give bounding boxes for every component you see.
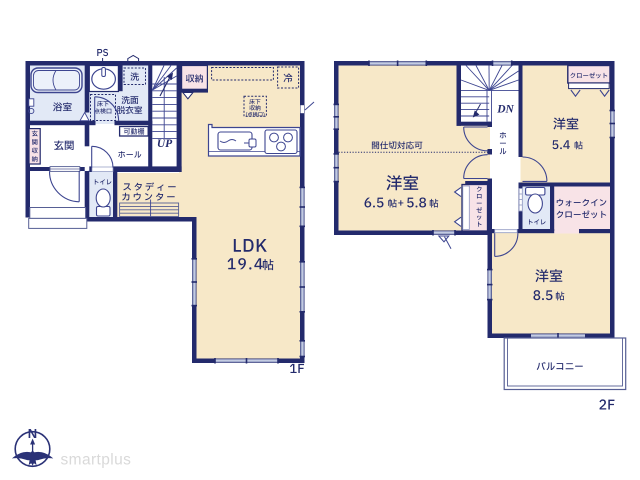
svg-text:UP: UP	[157, 138, 173, 150]
svg-text:DN: DN	[496, 104, 514, 116]
svg-text:smartplus: smartplus	[61, 452, 132, 469]
svg-text:N: N	[28, 426, 37, 441]
